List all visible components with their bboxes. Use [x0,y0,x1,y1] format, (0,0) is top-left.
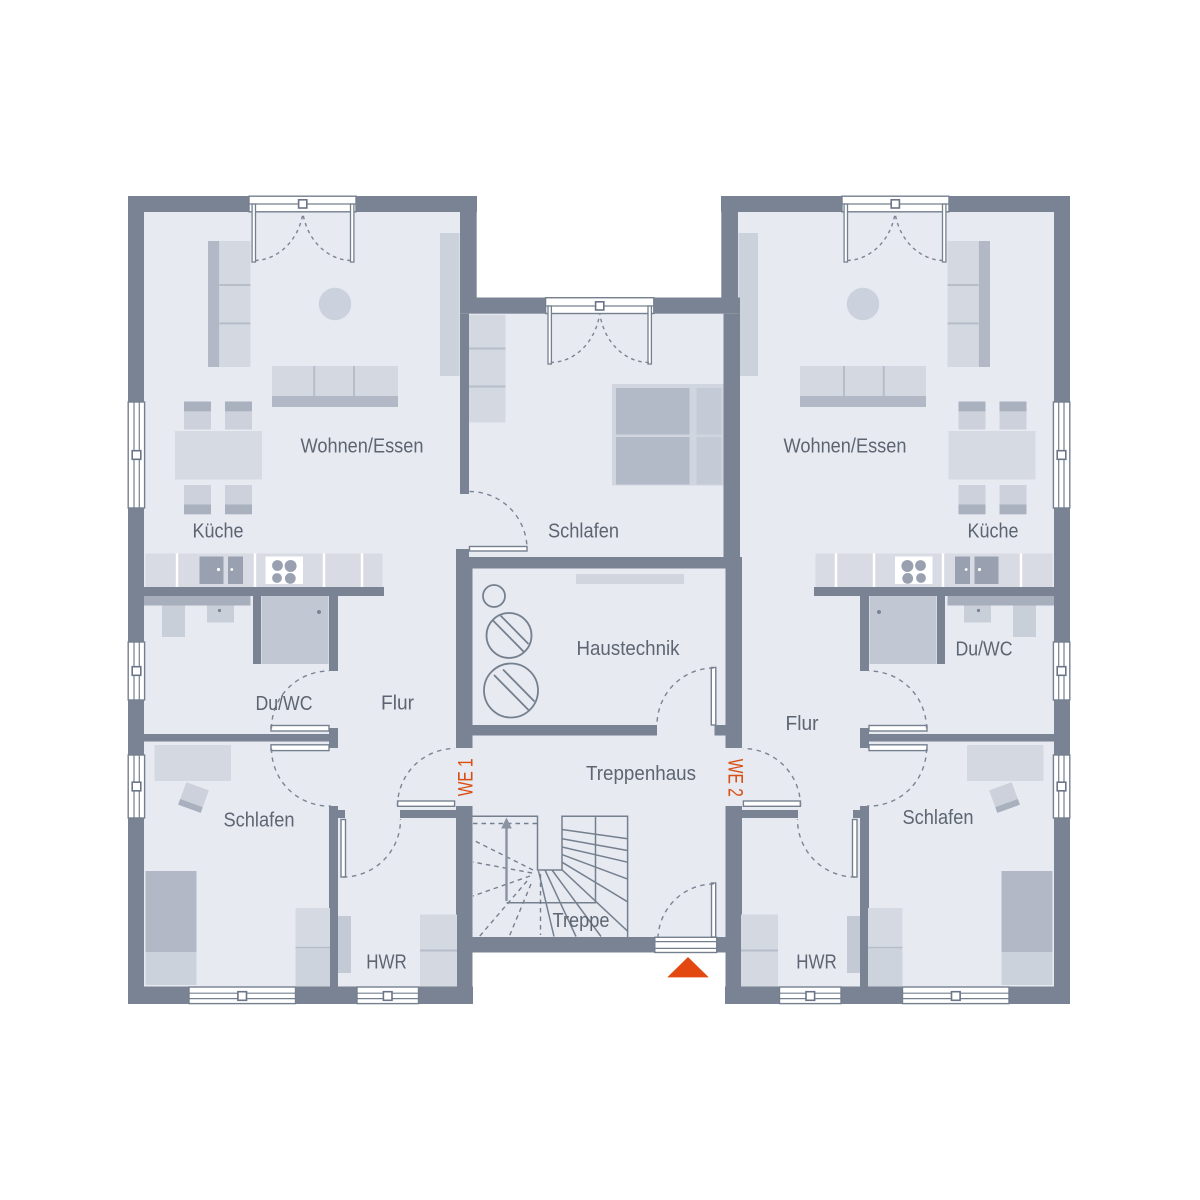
svg-text:Küche: Küche [193,520,244,543]
svg-text:Küche: Küche [968,520,1019,543]
svg-text:HWR: HWR [366,951,407,974]
svg-text:WE 2: WE 2 [724,759,747,797]
svg-text:Treppe: Treppe [553,909,610,932]
svg-text:Haustechnik: Haustechnik [577,637,681,660]
svg-text:Schlafen: Schlafen [224,809,295,832]
svg-text:WE 1: WE 1 [455,758,478,796]
svg-text:Wohnen/Essen: Wohnen/Essen [784,435,907,458]
svg-text:Flur: Flur [786,712,819,735]
svg-text:Treppenhaus: Treppenhaus [586,762,696,785]
svg-text:Du/WC: Du/WC [956,638,1013,661]
svg-text:HWR: HWR [796,951,837,974]
svg-text:Du/WC: Du/WC [256,692,313,715]
svg-text:Flur: Flur [381,692,414,715]
svg-text:Schlafen: Schlafen [548,520,619,543]
svg-text:Wohnen/Essen: Wohnen/Essen [301,435,424,458]
svg-text:Schlafen: Schlafen [903,806,974,829]
